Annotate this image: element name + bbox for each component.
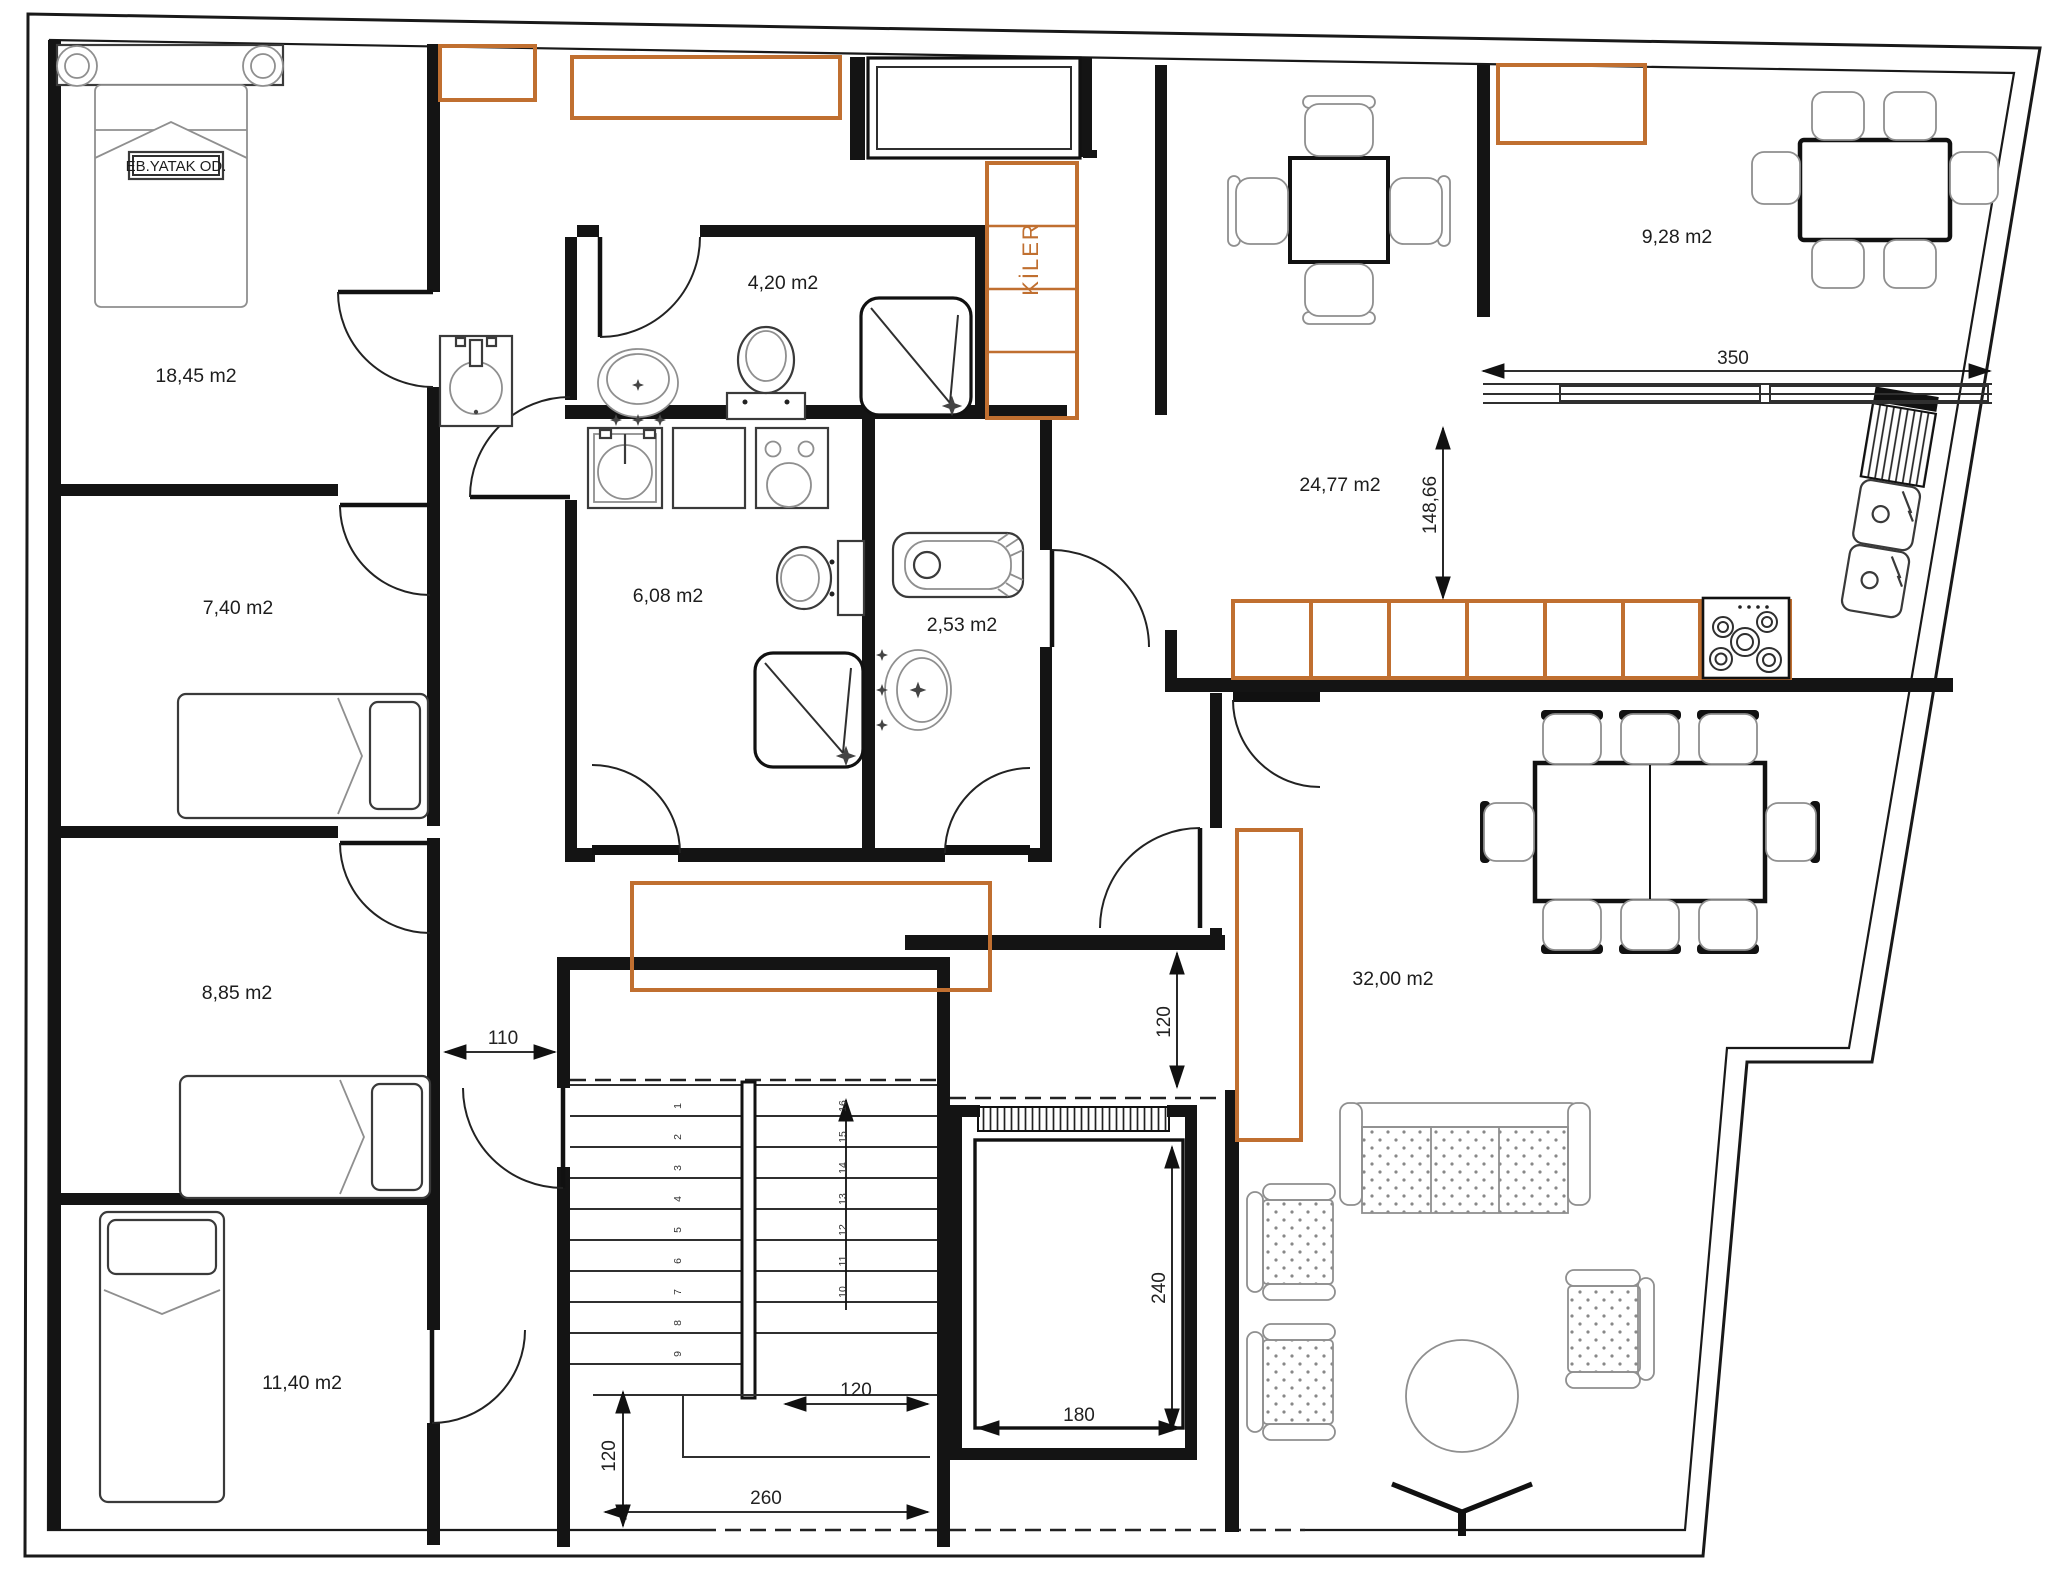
svg-text:12: 12 [837,1224,849,1236]
area-label: 11,40 m2 [262,1372,342,1394]
wardrobe [572,57,840,118]
door-bathroom [600,237,700,337]
svg-text:2: 2 [672,1134,684,1140]
wardrobe [440,46,535,100]
area-label: 4,20 m2 [748,272,818,294]
svg-text:8: 8 [672,1320,684,1326]
pantry-shelves: KİLER [987,163,1077,418]
toilet [777,541,864,615]
pantry-label: KİLER [1018,222,1043,296]
door-living-room [1100,828,1200,928]
washbasin-counter [588,428,745,508]
dimension-corridor-width: 110 [445,1028,555,1052]
room-master-bedroom: EB.YATAK OD. 18,45 m2 [57,45,283,387]
svg-text:110: 110 [488,1028,518,1049]
svg-text:240: 240 [1149,1272,1170,1304]
area-label: 18,45 m2 [155,365,236,387]
dimension-kitchen-depth: 148,66 [1420,428,1443,598]
washing-machine [756,428,828,508]
sofa [1340,1103,1590,1213]
door-wc [945,768,1030,855]
kitchen-sink [1839,387,1939,619]
svg-text:148,66: 148,66 [1420,476,1441,534]
svg-text:16: 16 [837,1100,849,1112]
wardrobe [1237,830,1301,1140]
svg-text:10: 10 [837,1286,849,1298]
svg-text:6: 6 [672,1258,684,1264]
area-label: 32,00 m2 [1352,968,1433,990]
door-entrance [463,1088,563,1188]
svg-text:260: 260 [750,1488,782,1509]
room-bedroom-4: 11,40 m2 [100,1212,342,1502]
stairs: 1 2 3 4 5 6 7 8 9 16 15 14 13 12 11 10 1… [570,1080,937,1526]
squat-toilet [893,533,1023,597]
svg-text:4: 4 [672,1196,684,1202]
dimension-stair-flight: 120 [785,1380,928,1404]
vanity-sink [440,336,512,426]
balcony-window [1483,384,1992,403]
breakfast-table [1228,96,1450,324]
washbasin [876,649,951,731]
dimension-stair-width: 260 [605,1488,928,1512]
dining-table-6 [1752,92,1998,288]
dimension-balcony-window: 350 [1483,348,1990,371]
stair-numbers-right: 16 15 14 13 12 11 10 [837,1100,849,1298]
top-cabinet [868,58,1080,158]
armchair [1247,1324,1335,1440]
toilet [727,327,805,419]
armchair [1247,1184,1335,1300]
svg-text:15: 15 [837,1131,849,1143]
svg-text:120: 120 [1154,1006,1175,1038]
svg-text:5: 5 [672,1227,684,1233]
area-label: 7,40 m2 [203,597,273,619]
room-bathroom: 4,20 m2 [440,272,971,426]
svg-text:120: 120 [599,1440,620,1472]
svg-text:350: 350 [1717,348,1749,369]
coffee-table [1406,1340,1518,1452]
area-label: 2,53 m2 [927,614,997,636]
dimension-elevator-depth: 240 [1149,1147,1172,1430]
area-label: 8,85 m2 [202,982,272,1004]
room-tag-box: EB.YATAK OD. [126,152,227,179]
room-living-room: 32,00 m2 [1237,710,1820,1536]
elevator-door [978,1107,1169,1131]
dimension-elevator-width: 180 [978,1405,1180,1428]
armchair [1566,1270,1654,1388]
svg-text:1: 1 [672,1103,684,1109]
dining-table-8 [1480,710,1820,954]
area-label: 24,77 m2 [1299,474,1380,496]
stair-numbers-left: 1 2 3 4 5 6 7 8 9 [672,1103,684,1357]
dimension-stair-landing: 120 [599,1392,623,1526]
tv-unit [1392,1484,1532,1536]
door-bedroom-4 [432,1330,525,1423]
room-tag: EB.YATAK OD. [126,158,227,175]
shower [861,298,971,416]
door-bathroom-2-lower [592,765,680,855]
room-wc: 2,53 m2 [876,533,1023,731]
door-bedroom-2 [340,505,430,595]
svg-text:3: 3 [672,1165,684,1171]
svg-text:9: 9 [672,1351,684,1357]
floor-plan-drawing: EB.YATAK OD. 18,45 m2 7,40 m2 8,85 m2 11… [0,0,2048,1587]
door-kitchen [1233,692,1320,787]
svg-text:14: 14 [837,1162,849,1174]
room-bathroom-2: 6,08 m2 [588,428,864,767]
stair-treads-left [570,1085,742,1364]
stair-rail [742,1082,755,1398]
svg-text:180: 180 [1063,1405,1095,1426]
door-hall [1052,550,1149,647]
single-bed [100,1212,224,1502]
svg-text:11: 11 [837,1255,849,1266]
shower [755,653,863,767]
single-bed [178,694,428,818]
area-label: 6,08 m2 [633,585,703,607]
dimension-hall-passage: 120 [1154,953,1177,1087]
area-label: 9,28 m2 [1642,226,1712,248]
room-bedroom-2: 7,40 m2 [178,597,428,818]
floor-plan-page: EB.YATAK OD. 18,45 m2 7,40 m2 8,85 m2 11… [0,0,2048,1587]
svg-text:13: 13 [837,1193,849,1205]
svg-text:7: 7 [672,1289,684,1295]
room-bedroom-3: 8,85 m2 [180,982,430,1198]
room-balcony: 9,28 m2 350 [1483,65,1998,403]
elevator: 240 180 [950,1105,1197,1460]
stove [1703,598,1789,678]
door-master-bedroom [338,292,433,387]
svg-text:120: 120 [840,1380,872,1401]
single-bed [180,1076,430,1198]
wardrobe [1498,65,1645,143]
door-bedroom-3 [340,843,430,933]
